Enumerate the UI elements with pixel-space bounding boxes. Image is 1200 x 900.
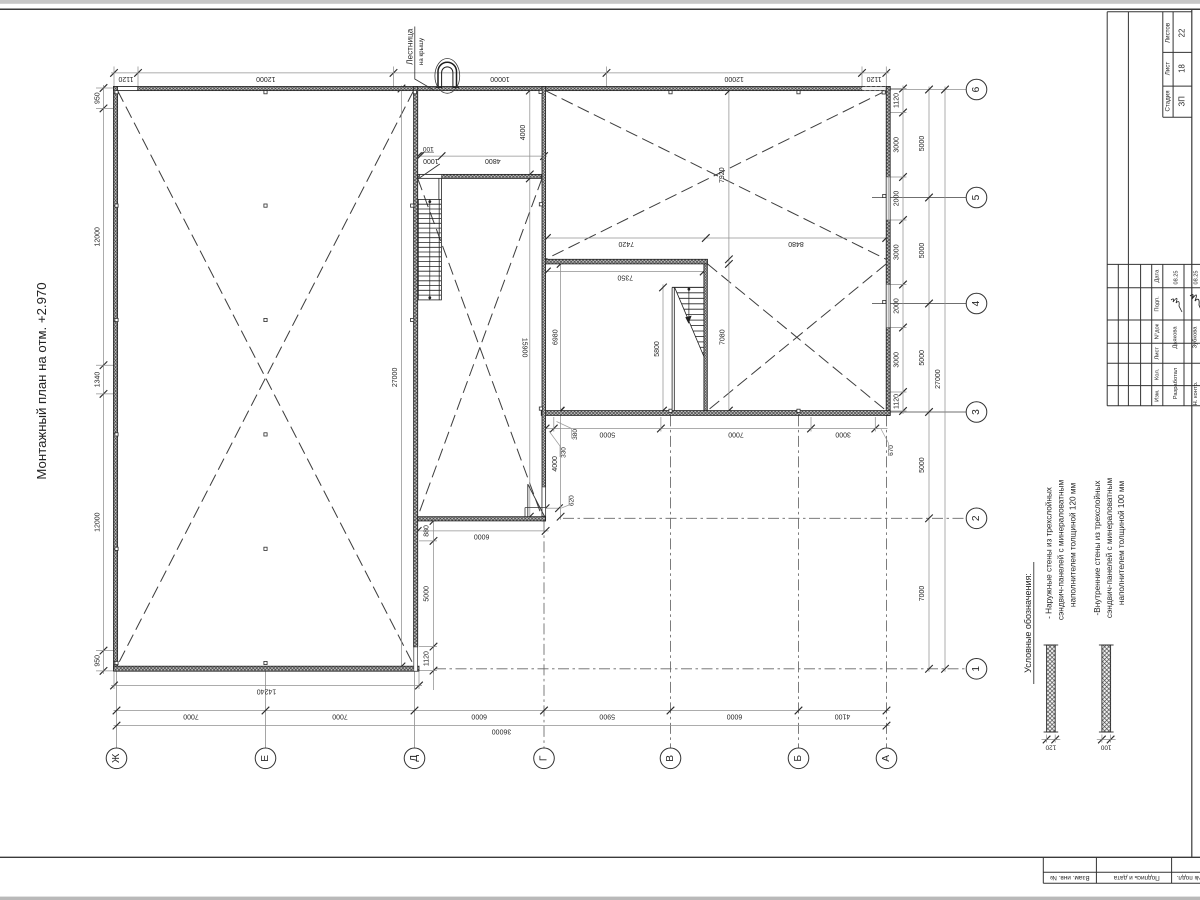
svg-text:27000: 27000 [935, 369, 942, 389]
svg-text:Д: Д [409, 755, 420, 762]
svg-text:7000: 7000 [728, 430, 744, 437]
svg-text:12000: 12000 [256, 75, 276, 82]
svg-text:5000: 5000 [423, 586, 430, 602]
svg-text:5800: 5800 [654, 341, 661, 357]
svg-text:2000: 2000 [893, 191, 900, 207]
svg-text:14240: 14240 [257, 687, 277, 694]
svg-text:380: 380 [572, 429, 579, 440]
svg-text:Лестница: Лестница [405, 28, 414, 65]
svg-text:950: 950 [94, 655, 101, 667]
svg-text:950: 950 [94, 92, 101, 104]
svg-text:670: 670 [888, 445, 895, 456]
svg-text:120: 120 [1045, 743, 1056, 750]
svg-text:Е: Е [260, 755, 271, 762]
svg-text:7350: 7350 [617, 273, 633, 280]
svg-text:Дьякова: Дьякова [1173, 326, 1179, 349]
svg-text:А: А [881, 755, 892, 762]
svg-text:N°док: N°док [1154, 323, 1160, 339]
svg-text:620: 620 [569, 495, 576, 506]
svg-text:1120: 1120 [893, 93, 900, 108]
svg-text:-Внутренние стены из трехслойн: -Внутренние стены из трехслойных [1093, 481, 1102, 616]
svg-text:наполнителем толщиной 120 мм: наполнителем толщиной 120 мм [1068, 483, 1077, 608]
svg-text:5: 5 [971, 194, 982, 200]
svg-text:6000: 6000 [474, 533, 490, 540]
svg-text:7000: 7000 [919, 586, 926, 602]
svg-text:5000: 5000 [599, 430, 615, 437]
svg-text:08.25: 08.25 [1174, 271, 1180, 285]
svg-text:Лист: Лист [1164, 62, 1171, 76]
svg-text:330: 330 [560, 447, 567, 458]
svg-text:4: 4 [971, 300, 982, 306]
svg-text:12000: 12000 [94, 512, 101, 532]
svg-text:Г: Г [539, 755, 550, 761]
svg-text:5000: 5000 [919, 243, 926, 259]
svg-text:22: 22 [1177, 29, 1186, 38]
svg-text:18: 18 [1177, 64, 1186, 73]
svg-text:12000: 12000 [94, 227, 101, 247]
svg-text:4800: 4800 [485, 157, 501, 164]
svg-text:Подп.: Подп. [1154, 296, 1160, 312]
svg-text:6000: 6000 [727, 712, 743, 719]
svg-text:на крышу: на крышу [418, 37, 425, 65]
svg-text:2: 2 [971, 515, 982, 521]
svg-text:Инв. № подл.: Инв. № подл. [1176, 874, 1200, 881]
svg-text:7000: 7000 [332, 712, 348, 719]
svg-text:Взам. инв. №: Взам. инв. № [1050, 874, 1090, 881]
svg-text:1120: 1120 [118, 75, 133, 82]
svg-text:7920: 7920 [719, 167, 726, 183]
svg-text:Условные обозначения:: Условные обозначения: [1023, 573, 1033, 673]
svg-text:1120: 1120 [423, 651, 430, 666]
svg-text:100: 100 [1100, 743, 1111, 750]
svg-text:Изм.: Изм. [1154, 389, 1160, 402]
svg-text:5000: 5000 [919, 350, 926, 366]
svg-text:2000: 2000 [893, 298, 900, 314]
svg-text:6980: 6980 [552, 329, 559, 345]
svg-text:4100: 4100 [835, 712, 851, 719]
svg-text:Листов: Листов [1164, 22, 1171, 43]
svg-text:08.25: 08.25 [1194, 271, 1200, 285]
svg-text:10000: 10000 [490, 75, 510, 82]
svg-text:4000: 4000 [520, 125, 527, 141]
svg-text:Н. контр.: Н. контр. [1193, 381, 1199, 405]
svg-text:1000: 1000 [423, 157, 439, 164]
svg-text:Стадия: Стадия [1164, 90, 1171, 111]
svg-text:1120: 1120 [893, 394, 900, 409]
svg-text:1340: 1340 [94, 372, 101, 388]
svg-text:наполнителем толщиной 100 мм: наполнителем толщиной 100 мм [1117, 481, 1126, 606]
svg-text:сэндвич-панелей с минераловатн: сэндвич-панелей с минераловатным [1105, 478, 1114, 619]
svg-text:4000: 4000 [552, 456, 559, 472]
svg-text:3000: 3000 [893, 352, 900, 368]
svg-text:6000: 6000 [471, 712, 487, 719]
svg-text:3: 3 [971, 409, 982, 415]
svg-text:3000: 3000 [835, 430, 851, 437]
svg-text:36000: 36000 [492, 727, 512, 734]
svg-text:Подпись и дата: Подпись и дата [1113, 874, 1159, 881]
svg-text:Кол.: Кол. [1154, 368, 1160, 380]
svg-text:5000: 5000 [919, 136, 926, 152]
svg-text:15900: 15900 [520, 338, 527, 358]
svg-text:В: В [665, 755, 676, 762]
svg-text:Зубкова: Зубкова [1193, 326, 1199, 349]
svg-text:6: 6 [971, 86, 982, 92]
svg-text:100: 100 [422, 145, 433, 152]
svg-text:7000: 7000 [183, 712, 199, 719]
svg-text:сэндвич-панелей с минераловатн: сэндвич-панелей с минераловатным [1056, 480, 1065, 621]
svg-text:Лист: Лист [1154, 347, 1160, 360]
svg-text:Ж: Ж [111, 753, 122, 763]
svg-text:Монтажный план на отм. +2.970: Монтажный план на отм. +2.970 [34, 282, 49, 479]
svg-text:27000: 27000 [392, 368, 399, 388]
svg-text:5000: 5000 [919, 457, 926, 473]
svg-text:Дата: Дата [1154, 269, 1160, 283]
svg-text:Разработал: Разработал [1173, 368, 1179, 400]
svg-text:1: 1 [971, 666, 982, 672]
svg-text:3000: 3000 [893, 137, 900, 153]
svg-text:7080: 7080 [719, 329, 726, 345]
svg-text:Б: Б [793, 755, 804, 762]
svg-text:3000: 3000 [893, 244, 900, 260]
svg-text:12000: 12000 [724, 75, 744, 82]
svg-text:5900: 5900 [599, 712, 615, 719]
svg-text:7420: 7420 [618, 240, 634, 247]
svg-text:8480: 8480 [788, 240, 804, 247]
svg-text:ЗП: ЗП [1177, 96, 1186, 106]
svg-text:- Наружные стены из трехслойны: - Наружные стены из трехслойных [1044, 487, 1053, 619]
svg-text:1120: 1120 [866, 75, 881, 82]
